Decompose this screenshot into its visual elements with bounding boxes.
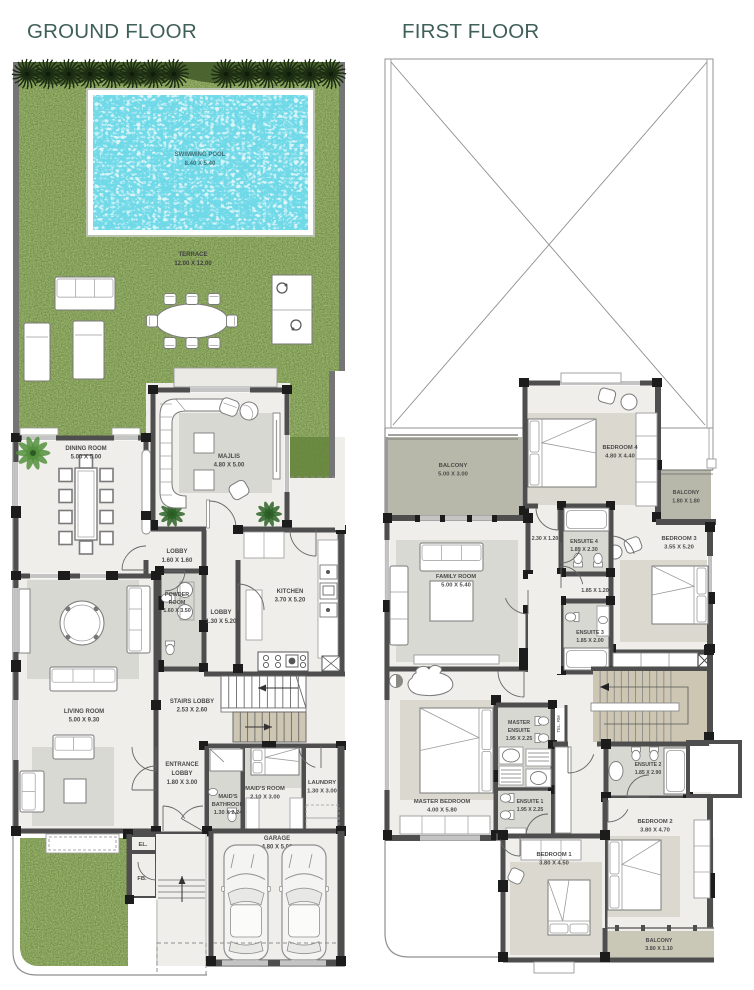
svg-text:BEDROOM 4: BEDROOM 4 (602, 445, 638, 451)
svg-text:BALCONY: BALCONY (439, 463, 468, 469)
svg-text:MAID'S: MAID'S (218, 794, 238, 800)
svg-text:EL.: EL. (138, 842, 147, 848)
svg-text:BALCONY: BALCONY (673, 490, 700, 496)
svg-text:5.00 X 3.00: 5.00 X 3.00 (438, 472, 468, 478)
svg-text:LOBBY: LOBBY (172, 771, 193, 777)
svg-text:3.80 X 4.50: 3.80 X 4.50 (539, 861, 569, 867)
svg-text:1.80 X 1.80: 1.80 X 1.80 (672, 499, 700, 505)
svg-text:1.80 X 3.00: 1.80 X 3.00 (167, 780, 198, 786)
svg-text:1.85 X 2.90: 1.85 X 2.90 (635, 770, 662, 776)
svg-text:5.00 X 5.00: 5.00 X 5.00 (71, 455, 102, 461)
svg-text:MAID'S ROOM: MAID'S ROOM (245, 786, 285, 792)
svg-text:ENTRANCE: ENTRANCE (165, 762, 198, 768)
svg-text:1.85 X 2.00: 1.85 X 2.00 (576, 638, 604, 644)
svg-text:BALCONY: BALCONY (646, 938, 673, 944)
svg-text:1.30 X 5.20: 1.30 X 5.20 (206, 619, 237, 625)
svg-text:12.00 X 12.00: 12.00 X 12.00 (174, 261, 212, 267)
svg-text:5.00 X 9.30: 5.00 X 9.30 (69, 718, 100, 724)
svg-text:ENSUITE: ENSUITE (508, 728, 531, 734)
svg-text:BEDROOM 1: BEDROOM 1 (536, 852, 572, 858)
svg-text:LOBBY: LOBBY (167, 549, 188, 555)
svg-text:MASTER BEDROOM: MASTER BEDROOM (414, 799, 471, 805)
svg-text:3.80 X 1.10: 3.80 X 1.10 (645, 946, 673, 952)
svg-text:1.85 X 2.30: 1.85 X 2.30 (570, 547, 598, 553)
svg-text:FAMILY ROOM: FAMILY ROOM (436, 574, 476, 580)
svg-text:LOBBY: LOBBY (211, 610, 232, 616)
svg-text:3.55 X 5.20: 3.55 X 5.20 (664, 545, 694, 551)
svg-text:4.80 X 5.00: 4.80 X 5.00 (214, 463, 245, 469)
svg-text:BATHROOM: BATHROOM (212, 802, 245, 808)
svg-text:SWIMMING POOL: SWIMMING POOL (175, 152, 226, 158)
svg-text:GROUND FLOOR: GROUND FLOOR (27, 20, 197, 43)
svg-text:ENSUITE 4: ENSUITE 4 (570, 539, 598, 545)
svg-text:ENSUITE 2: ENSUITE 2 (635, 762, 662, 768)
svg-text:1.95 X 2.25: 1.95 X 2.25 (517, 807, 544, 813)
svg-text:1.30 X 2.24: 1.30 X 2.24 (214, 810, 244, 816)
svg-text:1.60 X 1.60: 1.60 X 1.60 (162, 558, 193, 564)
svg-text:ENSUITE 1: ENSUITE 1 (517, 799, 544, 805)
svg-text:MAJLIS: MAJLIS (218, 454, 240, 460)
svg-text:DINING ROOM: DINING ROOM (65, 446, 106, 452)
svg-text:ROOM: ROOM (169, 600, 186, 606)
svg-text:STAIRS LOBBY: STAIRS LOBBY (170, 699, 214, 705)
svg-text:3.70 X 5.20: 3.70 X 5.20 (275, 598, 306, 604)
svg-text:LAUNDRY: LAUNDRY (308, 780, 336, 786)
svg-text:KITCHEN: KITCHEN (277, 589, 304, 595)
svg-text:1.85 X 1.20: 1.85 X 1.20 (581, 588, 609, 594)
svg-text:POWDER: POWDER (165, 592, 189, 598)
svg-text:3.80 X 4.70: 3.80 X 4.70 (640, 828, 670, 834)
svg-text:8.40 X 5.40: 8.40 X 5.40 (185, 161, 216, 167)
svg-text:5.00 X 5.40: 5.00 X 5.40 (441, 583, 471, 589)
svg-text:BEDROOM 3: BEDROOM 3 (661, 536, 697, 542)
svg-text:LIVING ROOM: LIVING ROOM (64, 709, 104, 715)
svg-text:BEDROOM 2: BEDROOM 2 (637, 819, 672, 825)
svg-text:2.30 X 1.20: 2.30 X 1.20 (532, 536, 559, 542)
svg-text:TERRACE: TERRACE (178, 252, 207, 258)
svg-text:4.00 X 5.80: 4.00 X 5.80 (427, 808, 457, 814)
svg-text:1.60 X 3.50: 1.60 X 3.50 (163, 608, 191, 614)
svg-text:ENSUITE 3: ENSUITE 3 (576, 630, 604, 636)
svg-text:1.95 X 2.25: 1.95 X 2.25 (506, 736, 533, 742)
svg-text:2.10 X 3.00: 2.10 X 3.00 (250, 795, 280, 801)
svg-text:GARAGE: GARAGE (264, 836, 290, 842)
svg-text:MASTER: MASTER (508, 720, 530, 726)
svg-text:FIRST FLOOR: FIRST FLOOR (402, 20, 539, 43)
svg-text:2.53 X 2.60: 2.53 X 2.60 (177, 708, 208, 714)
svg-text:1.30 X 3.00: 1.30 X 3.00 (307, 789, 337, 795)
svg-text:TEL. RM: TEL. RM (556, 715, 561, 733)
svg-text:4.80 X 4.40: 4.80 X 4.40 (605, 454, 635, 460)
